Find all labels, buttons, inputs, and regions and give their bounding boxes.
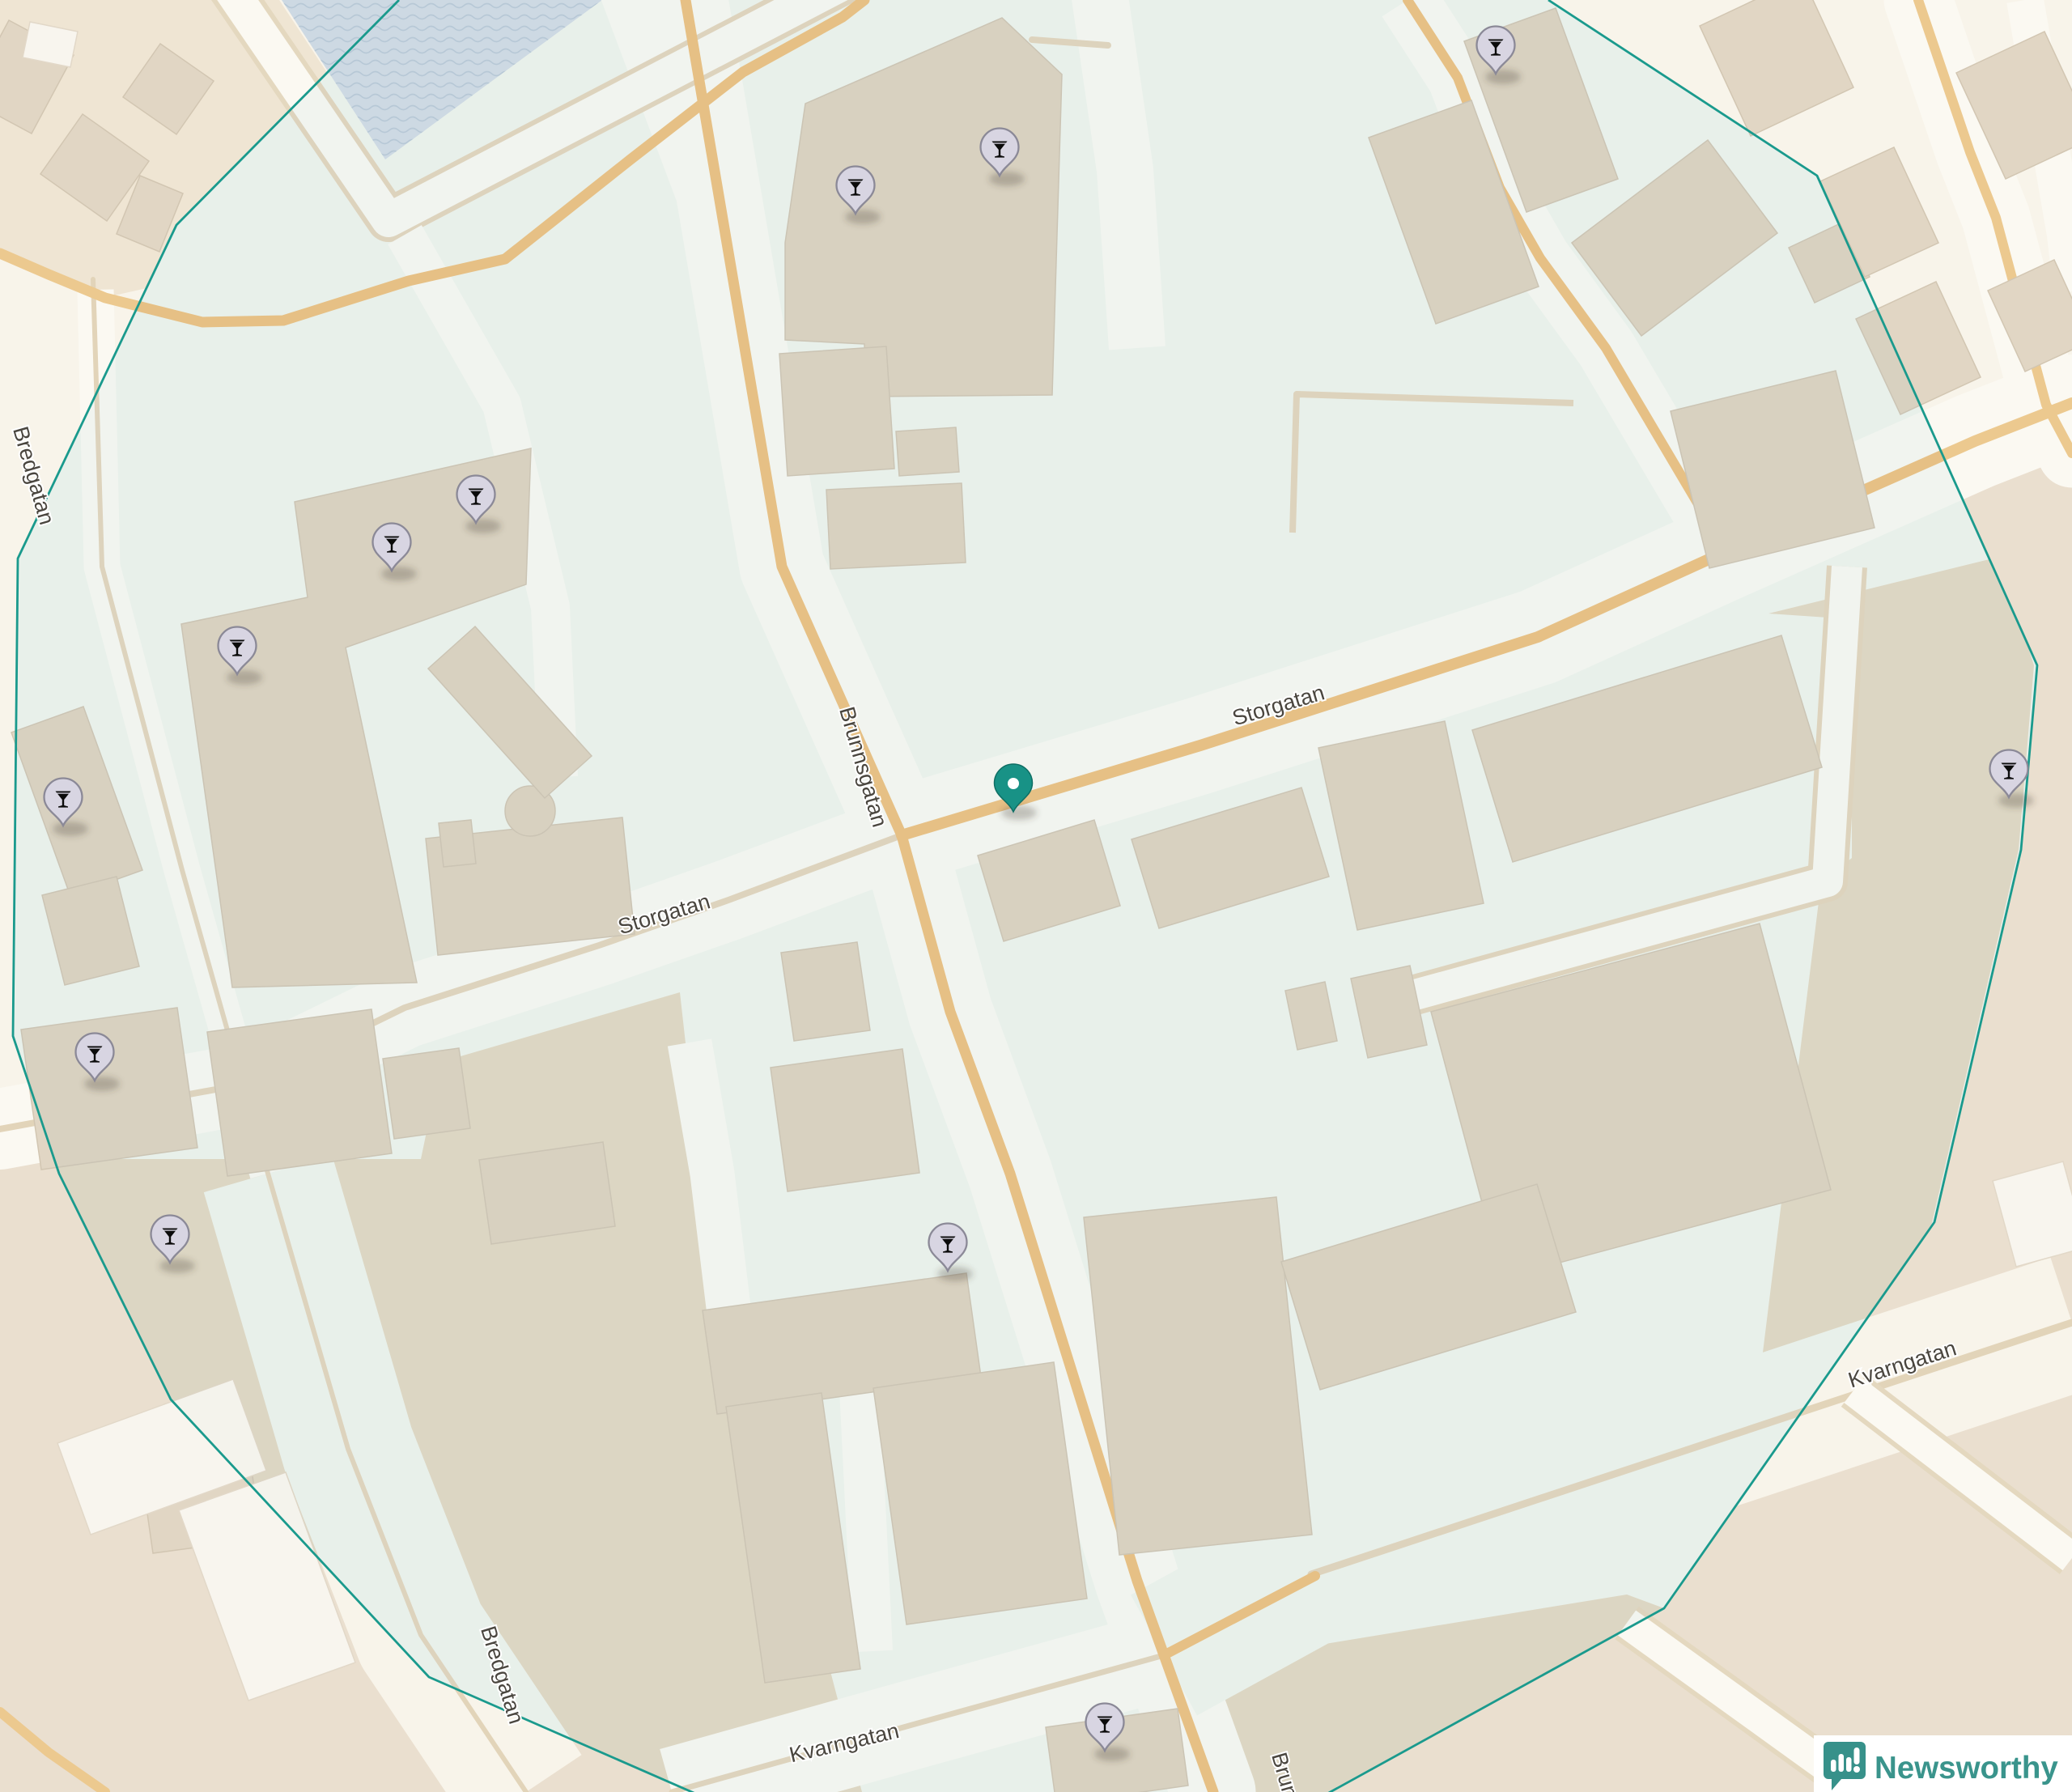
svg-text:Newsworthy: Newsworthy	[1875, 1751, 2058, 1786]
